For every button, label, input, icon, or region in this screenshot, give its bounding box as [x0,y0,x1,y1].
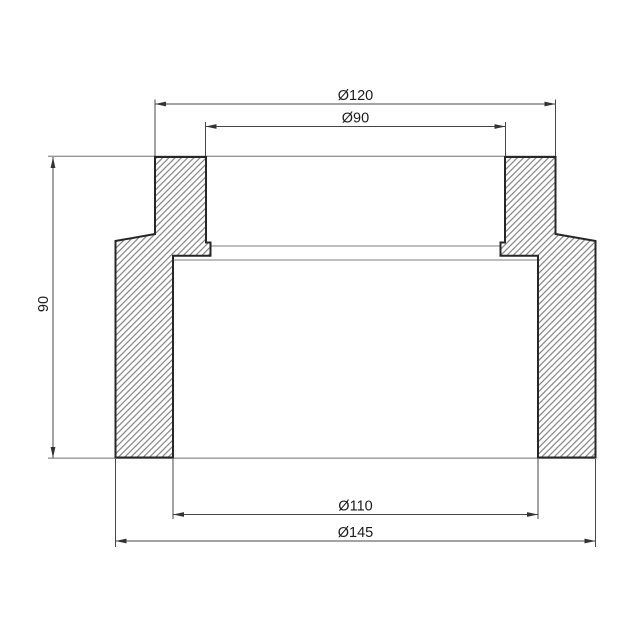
dimension-bottom-inner-diameter: Ø110 [173,459,538,519]
arrowhead-right [545,102,556,107]
section-walls [116,157,596,458]
arrowhead-left [206,124,217,129]
dim-label-bottom-inner-diameter: Ø110 [338,499,372,515]
dimension-height: 90 [36,157,55,458]
arrowhead-right [585,539,596,544]
technical-drawing: Ø120 Ø90 Ø110 Ø145 90 [0,0,630,630]
dim-label-top-outer-diameter: Ø120 [338,88,373,104]
arrowhead-left [116,539,127,544]
dim-label-height: 90 [36,296,52,312]
dim-label-top-inner-diameter: Ø90 [342,111,369,127]
arrowhead-bottom [51,447,56,458]
dimension-top-inner-diameter: Ø90 [206,111,506,157]
right-wall-section [501,157,596,458]
arrowhead-right [527,512,538,517]
drawing-canvas: Ø120 Ø90 Ø110 Ø145 90 [0,0,630,630]
arrowhead-left [173,512,184,517]
arrowhead-top [51,157,56,168]
left-wall-section [116,157,211,458]
dim-label-bottom-outer-diameter: Ø145 [338,525,373,541]
arrowhead-left [155,102,166,107]
arrowhead-right [495,124,506,129]
